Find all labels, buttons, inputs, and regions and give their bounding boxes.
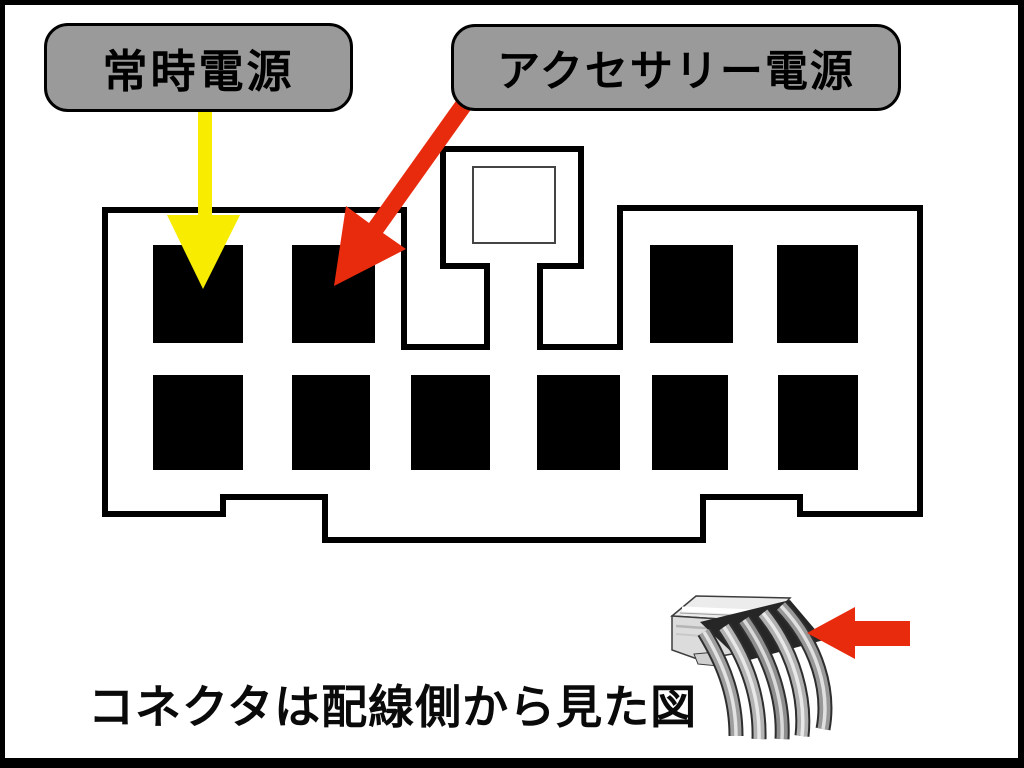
pin-cavity	[777, 245, 858, 343]
diagram-canvas: 常時電源 アクセサリー電源 コネクタは配線側から見た図	[0, 0, 1024, 768]
label-accessory-power: アクセサリー電源	[451, 24, 901, 111]
latch-window	[473, 167, 555, 243]
pin-cavity	[292, 375, 370, 470]
pin-cavity	[650, 245, 733, 343]
label-accessory-power-text: アクセサリー電源	[497, 37, 855, 99]
connector-diagram	[105, 149, 920, 540]
pin-cavity	[778, 375, 858, 470]
connector-photo-illustration	[672, 596, 910, 739]
label-constant-power-text: 常時電源	[102, 35, 294, 100]
pin-cavity	[153, 375, 243, 470]
pin-cavity	[652, 375, 728, 470]
pin-cavity	[537, 375, 620, 470]
caption-text: コネクタは配線側から見た図	[88, 671, 697, 737]
diagram-artwork	[0, 0, 1024, 768]
pin-cavity	[411, 375, 490, 470]
label-constant-power: 常時電源	[44, 23, 353, 112]
photo-pointer-arrow-icon	[807, 607, 910, 659]
